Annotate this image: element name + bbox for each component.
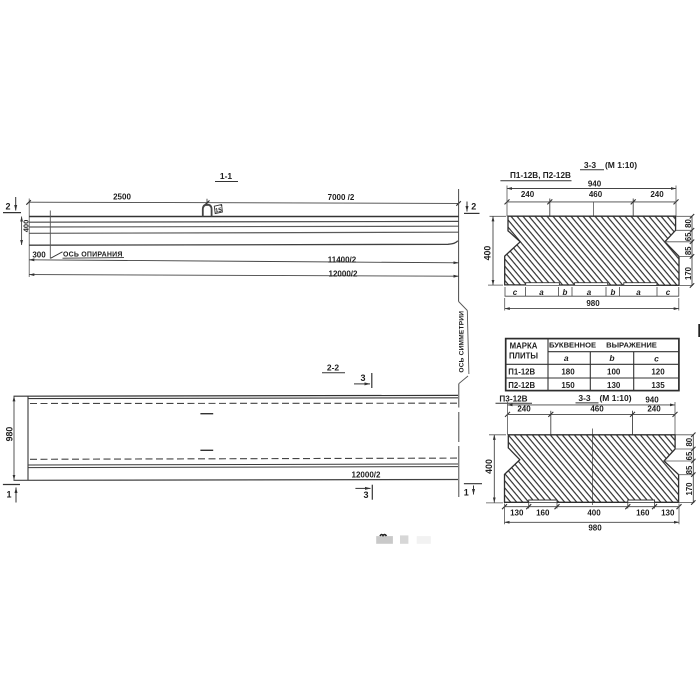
svg-text:65: 65 [684,232,693,241]
svg-text:1: 1 [6,489,11,499]
svg-text:160: 160 [636,508,650,517]
svg-text:7000 /2: 7000 /2 [328,193,355,202]
svg-text:85: 85 [684,246,693,255]
svg-text:65: 65 [685,451,694,460]
svg-text:940: 940 [588,179,602,188]
svg-text:(М 1:10): (М 1:10) [605,160,637,170]
svg-text:400: 400 [587,508,601,517]
svg-text:ПЛИТЫ: ПЛИТЫ [509,352,538,361]
svg-text:400: 400 [484,459,494,474]
svg-text:150: 150 [561,381,575,390]
svg-text:ОСЬ СИММЕТРИИ: ОСЬ СИММЕТРИИ [459,311,466,373]
svg-text:130: 130 [607,381,621,390]
svg-text:130: 130 [510,508,524,517]
svg-text:11400/2: 11400/2 [328,255,357,264]
svg-text:980: 980 [5,427,15,442]
svg-text:130: 130 [661,508,675,517]
svg-text:a: a [587,288,592,297]
svg-text:1: 1 [464,487,469,497]
svg-text:2500: 2500 [113,192,131,201]
svg-text:c: c [513,288,518,297]
svg-text:c: c [654,354,659,364]
svg-text:12000/2: 12000/2 [352,471,381,480]
svg-text:940: 940 [645,396,659,405]
svg-text:80: 80 [685,437,694,446]
svg-text:П3-12В: П3-12В [499,394,527,403]
svg-text:400: 400 [483,246,493,261]
svg-text:2: 2 [5,202,10,212]
svg-text:П1-12В: П1-12В [508,367,535,376]
svg-text:120: 120 [651,367,665,376]
svg-text:(М 1:10): (М 1:10) [599,393,631,403]
svg-text:2-2: 2-2 [327,363,340,373]
svg-text:b: b [611,288,616,297]
svg-text:135: 135 [651,381,665,390]
svg-text:3: 3 [363,490,368,500]
svg-text:160: 160 [536,508,550,517]
svg-text:170: 170 [685,482,694,496]
svg-text:980: 980 [586,299,600,308]
svg-text:300: 300 [32,250,46,259]
svg-text:1-1: 1-1 [220,171,233,181]
svg-text:980: 980 [588,523,602,532]
svg-text:a: a [539,288,544,297]
svg-text:2: 2 [471,202,476,212]
svg-text:400: 400 [21,220,30,233]
svg-text:85: 85 [685,465,694,474]
svg-text:3-3: 3-3 [578,393,591,403]
svg-text:3: 3 [360,373,365,383]
svg-text:3-3: 3-3 [584,160,597,170]
svg-text:100: 100 [607,367,621,376]
svg-text:П2-12В: П2-12В [508,381,535,390]
svg-text:П1-12В, П2-12В: П1-12В, П2-12В [510,171,571,180]
svg-text:240: 240 [647,405,661,414]
svg-text:ВЫРАЖЕНИЕ: ВЫРАЖЕНИЕ [606,340,657,349]
svg-text:460: 460 [589,190,603,199]
svg-text:a: a [564,353,569,363]
svg-text:240: 240 [517,405,531,414]
svg-text:b: b [563,288,568,297]
svg-text:240: 240 [650,190,664,199]
svg-text:a: a [636,288,641,297]
svg-text:80: 80 [684,219,693,228]
svg-text:БУКВЕННОЕ: БУКВЕННОЕ [549,340,596,349]
svg-text:240: 240 [521,190,535,199]
svg-text:460: 460 [590,405,604,414]
svg-text:МАРКА: МАРКА [510,341,538,350]
svg-text:b: b [609,353,614,363]
svg-text:170: 170 [684,266,693,280]
svg-text:180: 180 [561,367,575,376]
svg-text:c: c [666,288,671,297]
svg-text:12000/2: 12000/2 [329,270,358,279]
